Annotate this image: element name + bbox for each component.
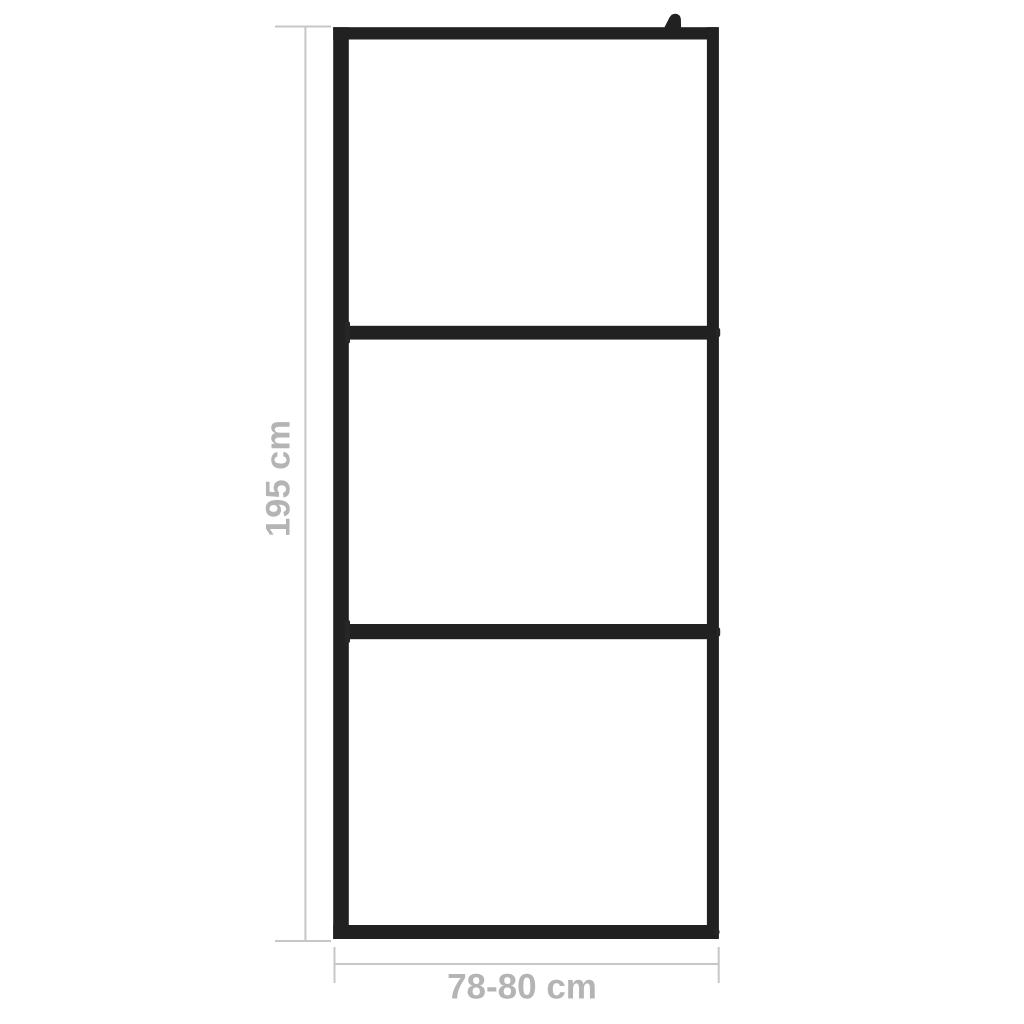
- svg-text:78-80 cm: 78-80 cm: [447, 968, 597, 1007]
- svg-text:195 cm: 195 cm: [260, 420, 298, 537]
